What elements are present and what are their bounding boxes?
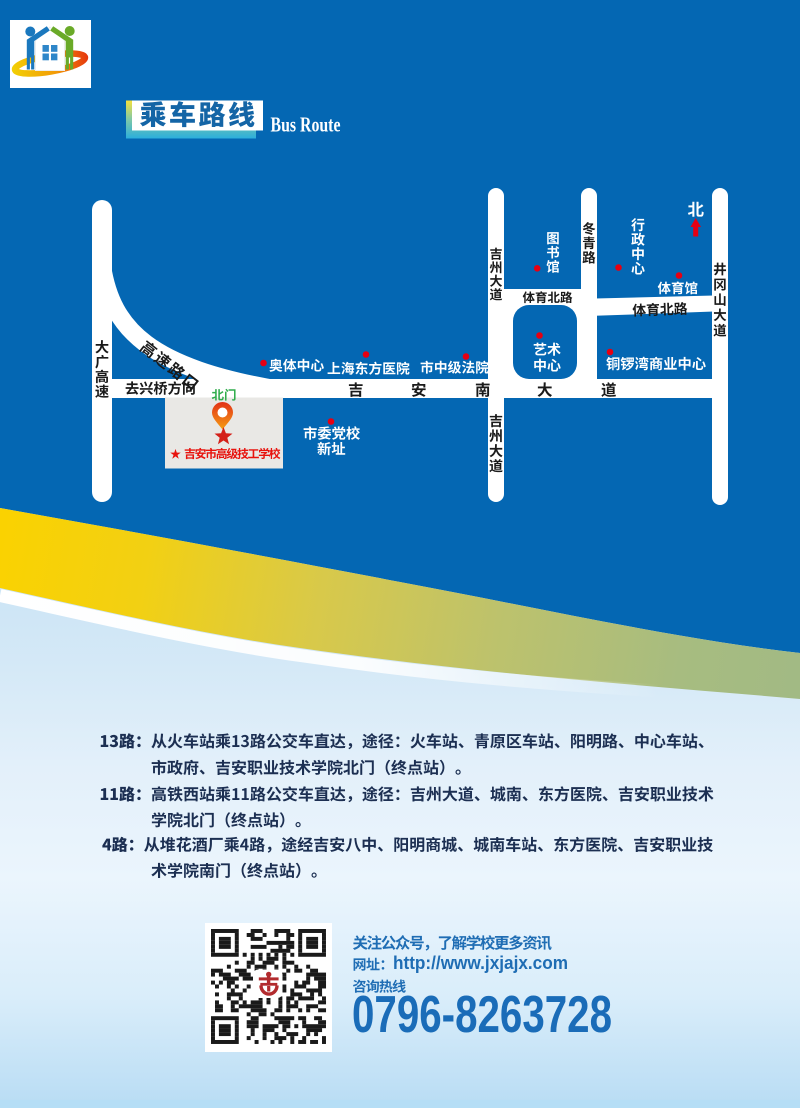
svg-text:0796-8263728: 0796-8263728 [352, 986, 612, 1044]
svg-text:Bus Route: Bus Route [271, 113, 341, 137]
svg-text:http://www.jxjajx.com: http://www.jxjajx.com [393, 953, 568, 973]
